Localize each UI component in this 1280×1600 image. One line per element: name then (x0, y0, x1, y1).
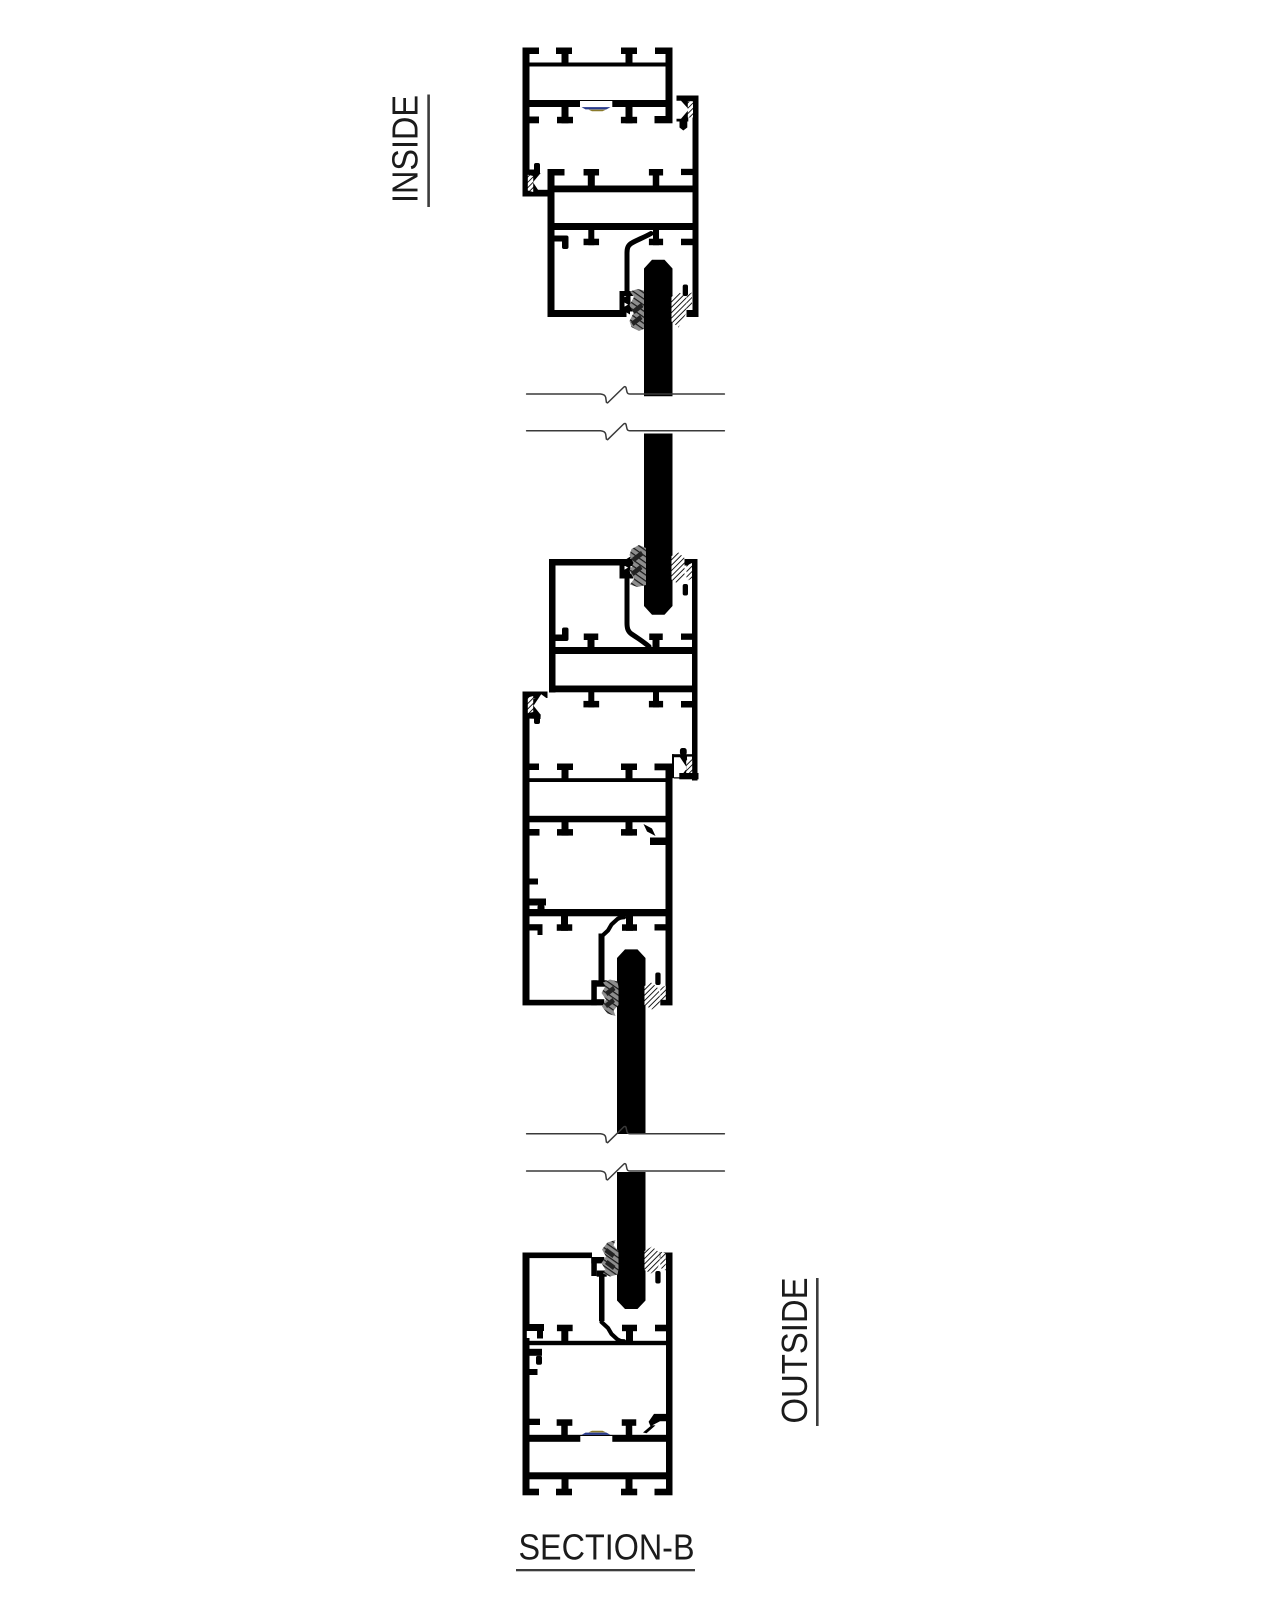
svg-text:INSIDE: INSIDE (385, 95, 426, 203)
svg-text:OUTSIDE: OUTSIDE (774, 1278, 815, 1424)
svg-text:SECTION-B: SECTION-B (519, 1527, 695, 1568)
